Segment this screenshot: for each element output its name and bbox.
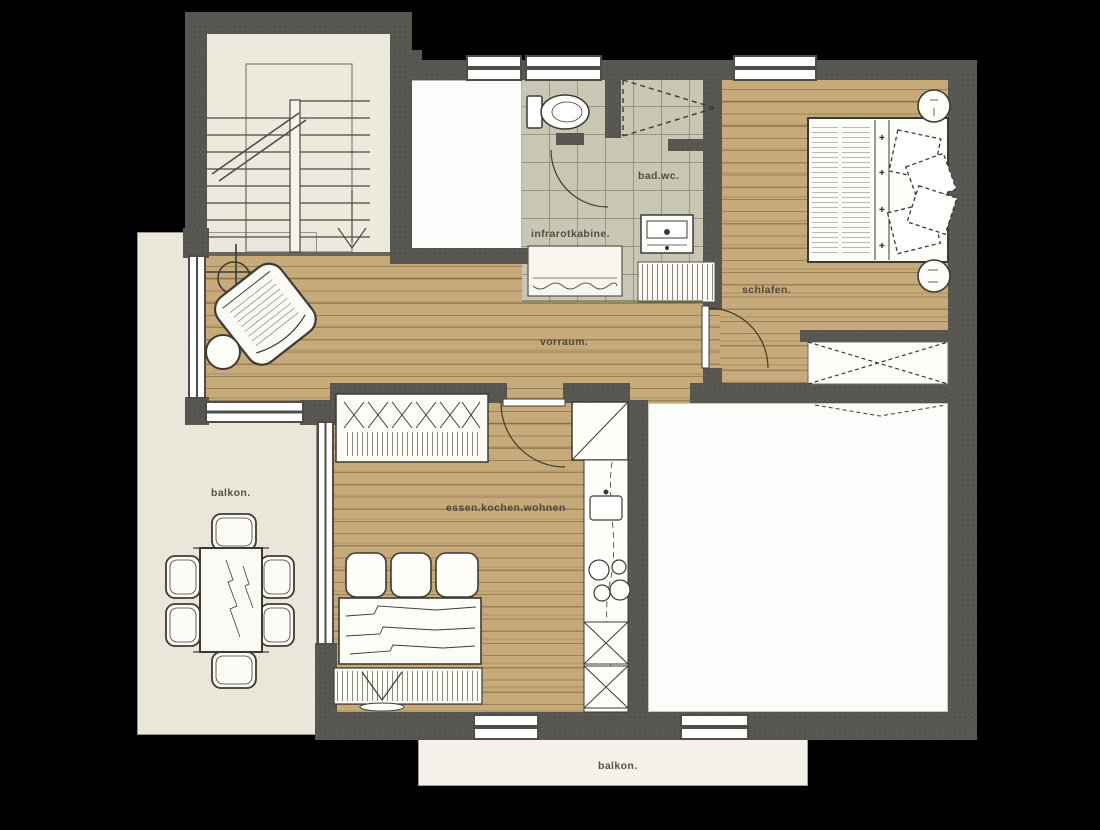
- living-door: [501, 399, 565, 467]
- room-label-bedroom: schlafen.: [742, 284, 791, 296]
- room-label-bathroom: bad.wc.: [638, 170, 679, 182]
- staircase: [207, 64, 370, 252]
- tv-board: [334, 668, 482, 711]
- wardrobe: [808, 342, 948, 384]
- room-label-balcony-left: balkon.: [211, 487, 251, 499]
- svg-text:✚: ✚: [879, 134, 885, 142]
- closet-niche: [638, 262, 715, 302]
- shower: [623, 80, 715, 136]
- svg-text:✚: ✚: [879, 169, 885, 177]
- floor-plan-canvas: ✚✚ ✚✚: [0, 0, 1100, 830]
- svg-text:✚: ✚: [879, 206, 885, 214]
- room-label-infrared-cabin: infrarotkabine.: [531, 228, 610, 240]
- double-bed: ✚✚ ✚✚: [808, 118, 957, 262]
- room-label-living: essen.kochen.wohnen: [446, 502, 566, 514]
- dining-set: [166, 514, 294, 688]
- dashed-opening-marks: [815, 405, 946, 416]
- room-label-hallway: vorraum.: [540, 336, 588, 348]
- sink: [590, 496, 622, 520]
- toilet: [527, 95, 589, 129]
- svg-text:✚: ✚: [879, 242, 885, 250]
- side-table: [206, 335, 240, 369]
- sideboard: [336, 394, 488, 462]
- sofa: [339, 553, 481, 664]
- nightstand: [918, 90, 950, 122]
- room-label-balcony-bottom: balkon.: [598, 760, 638, 772]
- infrared-cabin: [528, 246, 622, 296]
- bedroom-door: [702, 306, 768, 368]
- kitchen: [572, 402, 630, 712]
- washbasin: [641, 215, 693, 253]
- nightstand: [918, 260, 950, 292]
- bath-door: [551, 150, 608, 207]
- furniture-layer: ✚✚ ✚✚: [0, 0, 1100, 830]
